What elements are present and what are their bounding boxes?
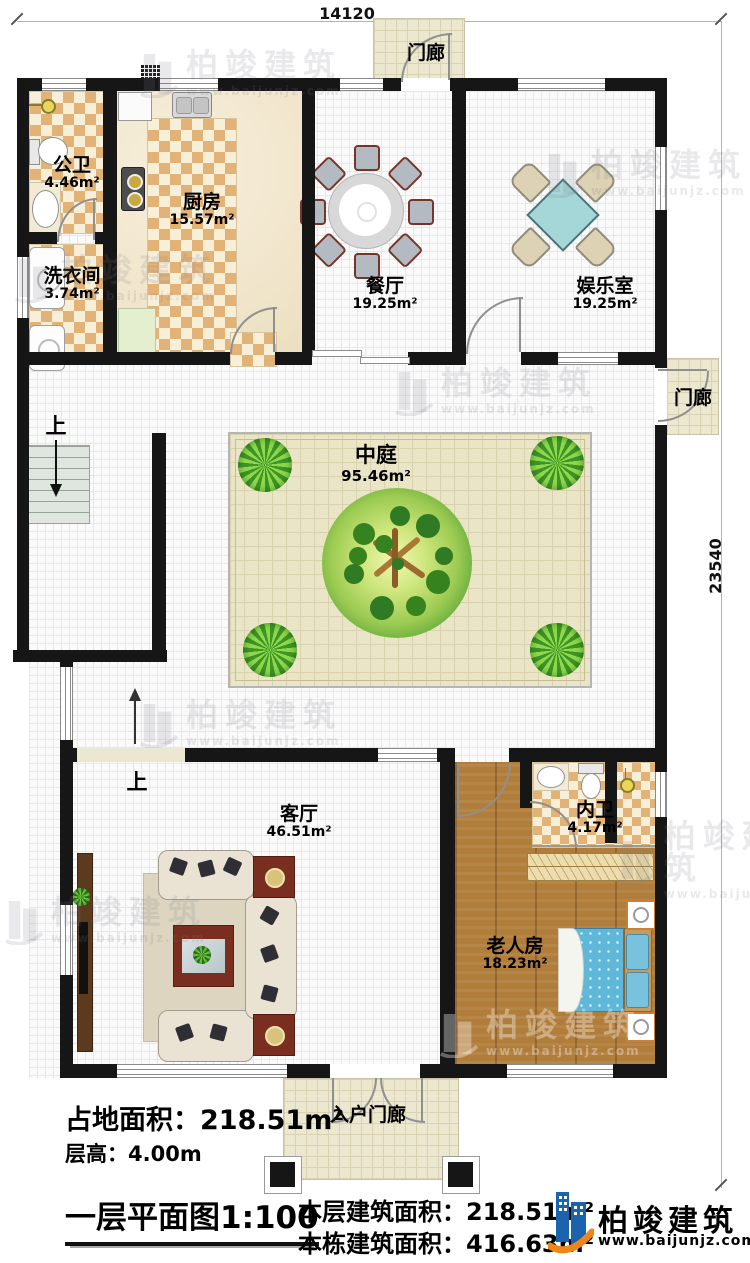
- palm-plant-icon: [243, 623, 297, 677]
- wall-bedroom-north: [509, 748, 660, 762]
- nightstand-icon: [626, 1012, 656, 1042]
- room-name: 老人房: [482, 936, 547, 957]
- wall-corridor-north: [521, 352, 558, 365]
- room-area: 19.25m²: [352, 297, 417, 313]
- cased-opening-living: [77, 748, 185, 762]
- wall-dining-ent: [452, 91, 466, 365]
- door-leaf: [457, 763, 459, 815]
- tv-icon: [79, 922, 88, 994]
- wall-bath-laundry: [95, 232, 117, 244]
- bed-pillow-icon: [626, 972, 649, 1008]
- room-area: 4.17m²: [567, 821, 622, 837]
- floor-area-label: 本层建筑面积：: [298, 1198, 466, 1226]
- total-area-label: 本栋建筑面积：: [298, 1230, 466, 1258]
- table-medallion: [265, 1026, 285, 1046]
- sofa-icon: [158, 850, 254, 900]
- window-icon: [160, 78, 218, 91]
- wardrobe-rail: [528, 866, 653, 867]
- room-area: 46.51m²: [266, 825, 331, 841]
- wall-living-north: [185, 748, 378, 762]
- land-area-value: 218.51m²: [200, 1105, 344, 1136]
- room-area: 18.23m²: [482, 957, 547, 973]
- kitchen-sink-icon: [172, 92, 212, 118]
- wall-kitchen-west: [103, 91, 117, 352]
- pillow: [260, 984, 278, 1002]
- sofa-icon: [245, 895, 297, 1019]
- wash-basin-icon: [32, 190, 59, 228]
- column-icon: [270, 1162, 295, 1187]
- watermark-name: 柏竣建筑: [664, 820, 750, 884]
- room-name: 公卫: [44, 155, 99, 176]
- room-label-laundry: 洗衣间 3.74m²: [43, 266, 100, 303]
- up-arrow-line: [134, 700, 136, 744]
- brand-logo-icon: [548, 1190, 594, 1254]
- room-label-bedroom: 老人房 18.23m²: [482, 936, 547, 973]
- room-name: 厨房: [169, 192, 234, 213]
- room-name: 内卫: [567, 800, 622, 821]
- burner: [127, 174, 143, 190]
- window-icon: [378, 748, 437, 762]
- door-leaf: [93, 198, 95, 240]
- table-center: [357, 202, 377, 222]
- stairs-up-label: 上: [46, 410, 67, 440]
- pillow: [260, 944, 279, 963]
- hall-up-label: 上: [127, 766, 148, 796]
- kitchen-counter-board: [118, 308, 156, 356]
- window-icon: [60, 905, 73, 975]
- fridge-icon: [118, 92, 152, 121]
- window-icon: [42, 78, 86, 91]
- floor-plan: 14120 23540: [0, 0, 750, 1263]
- wall-right: [655, 91, 667, 1078]
- window-icon: [117, 1064, 287, 1078]
- wall-corridor-north: [275, 352, 312, 365]
- dimension-width: 14120: [317, 4, 377, 23]
- wash-basin-icon: [537, 766, 565, 788]
- end-table-icon: [253, 856, 295, 898]
- door-leaf: [519, 297, 521, 352]
- door-leaf: [273, 307, 275, 352]
- bed-sheet: [558, 928, 584, 1012]
- watermark-name: 柏竣建筑: [186, 49, 342, 81]
- door-leaf: [448, 33, 450, 80]
- pillow: [197, 859, 215, 877]
- stove-icon: [121, 167, 145, 211]
- window-icon: [655, 147, 667, 210]
- palm-plant-icon: [238, 438, 292, 492]
- window-icon: [518, 78, 605, 91]
- pillow: [169, 857, 188, 876]
- wardrobe-icon: [527, 853, 654, 881]
- room-label-kitchen: 厨房 15.57m²: [169, 192, 234, 229]
- stairs-arrow-line: [55, 440, 57, 486]
- porch-side-label: 门廊: [674, 383, 712, 410]
- toilet-bowl-icon: [581, 773, 601, 799]
- room-name: 客厅: [266, 804, 331, 825]
- kitchen-rug-tiles: [147, 118, 237, 354]
- palm-plant-icon: [530, 436, 584, 490]
- door-leaf: [421, 1078, 423, 1121]
- window-icon: [655, 772, 667, 817]
- room-label-dining: 餐厅 19.25m²: [352, 276, 417, 313]
- window-icon: [60, 667, 73, 740]
- column-icon: [448, 1162, 473, 1187]
- wall-bath-laundry: [29, 232, 57, 244]
- wall-corridor-north: [408, 352, 466, 365]
- dimension-tick-icon: [11, 13, 24, 26]
- pillow: [223, 857, 243, 877]
- courtyard-tree-icon: [322, 488, 472, 638]
- window-icon: [17, 257, 29, 318]
- room-name: 餐厅: [352, 276, 417, 297]
- sliding-door-panel: [312, 350, 362, 357]
- dining-chair-icon: [354, 145, 380, 171]
- tree-foliage: [392, 558, 404, 570]
- dining-chair-icon: [408, 199, 434, 225]
- wall-corridor-north: [618, 352, 655, 365]
- lamp: [633, 907, 649, 923]
- window-icon: [340, 78, 383, 91]
- nightstand-icon: [626, 900, 656, 930]
- porch-top-label: 门廊: [407, 38, 445, 65]
- wall-left-upper: [17, 91, 29, 662]
- window-icon: [558, 352, 618, 365]
- brand-site: www.baijunjz.com: [598, 1233, 750, 1249]
- door-leaf: [658, 369, 707, 371]
- table-medallion: [265, 868, 285, 888]
- end-table-icon: [253, 1014, 295, 1056]
- sofa-icon: [158, 1010, 254, 1062]
- room-area: 3.74m²: [43, 287, 100, 303]
- room-name: 娱乐室: [572, 276, 637, 297]
- wall-bedroom-west: [440, 748, 455, 1078]
- pillow: [259, 905, 279, 925]
- land-area-label: 占地面积：: [65, 1105, 200, 1136]
- watermark-site: www.baijunjz.com: [664, 888, 750, 900]
- wall-kitchen-dining: [302, 91, 315, 352]
- room-area: 19.25m²: [572, 297, 637, 313]
- pillow: [209, 1023, 227, 1041]
- floor-height-text: 层高：4.00m: [65, 1138, 202, 1168]
- burner: [127, 192, 143, 208]
- room-label-inner-bath: 内卫 4.17m²: [567, 800, 622, 837]
- dimension-height: 23540: [706, 526, 726, 606]
- room-label-courtyard: 中庭 95.46m²: [341, 444, 411, 484]
- window-icon: [507, 1064, 613, 1078]
- room-name: 中庭: [341, 444, 411, 468]
- wall-stairhall-east: [152, 433, 166, 662]
- room-area: 4.46m²: [44, 176, 99, 192]
- room-label-living: 客厅 46.51m²: [266, 804, 331, 841]
- bed-pillow-icon: [626, 934, 649, 970]
- plant-icon: [72, 888, 90, 906]
- lamp: [633, 1019, 649, 1035]
- shower-head-icon: [41, 99, 56, 114]
- pillow: [175, 1023, 194, 1042]
- wall-living-north: [60, 748, 77, 762]
- sliding-door-panel: [360, 357, 410, 364]
- palm-plant-icon: [530, 623, 584, 677]
- wall-stairhall-bottom: [13, 650, 167, 662]
- room-label-entertainment: 娱乐室 19.25m²: [572, 276, 637, 313]
- land-area-text: 占地面积：218.51m²: [65, 1098, 344, 1137]
- plan-title: 一层平面图1:100: [65, 1192, 319, 1246]
- room-area: 95.46m²: [341, 468, 411, 485]
- plant-icon: [193, 946, 211, 964]
- up-arrow-icon: [129, 688, 141, 701]
- door-opening-entry: [330, 1064, 420, 1078]
- pendant-lamp-icon: [620, 778, 635, 793]
- room-name: 洗衣间: [43, 266, 100, 287]
- wall-corridor-north: [17, 352, 230, 365]
- stairs-arrow-down-icon: [50, 484, 62, 497]
- room-area: 15.57m²: [169, 213, 234, 229]
- brand-logo: [548, 1190, 594, 1258]
- room-label-public-bath: 公卫 4.46m²: [44, 155, 99, 192]
- sink-basin: [176, 97, 192, 114]
- sink-basin: [193, 97, 209, 114]
